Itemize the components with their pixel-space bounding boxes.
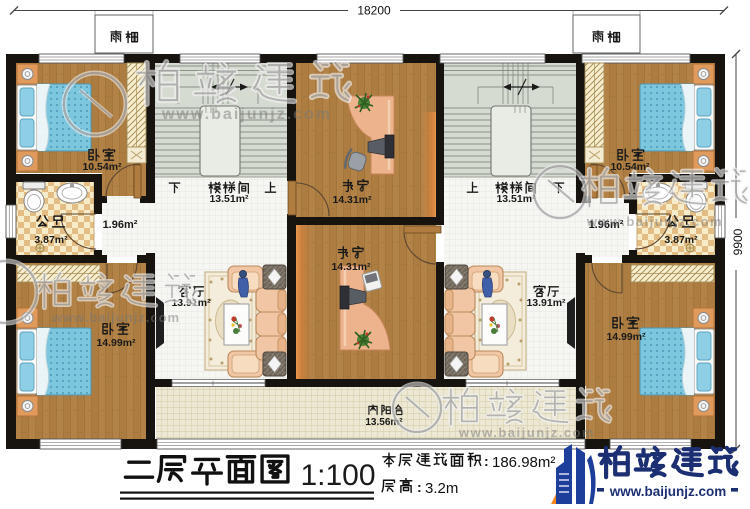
svg-text:10.54m²: 10.54m² (82, 161, 122, 173)
svg-text:3.87m²: 3.87m² (664, 234, 698, 246)
svg-text:18200: 18200 (357, 4, 391, 18)
svg-text:13.51m²: 13.51m² (496, 193, 536, 205)
svg-text:186.98m²: 186.98m² (492, 454, 555, 471)
svg-text:14.31m²: 14.31m² (331, 261, 371, 273)
svg-text::: : (417, 479, 422, 495)
svg-text:9900: 9900 (731, 228, 745, 255)
svg-text:www.baijunjz.com: www.baijunjz.com (586, 214, 723, 229)
svg-text:13.91m²: 13.91m² (526, 297, 566, 309)
svg-text:www.baijunjz.com: www.baijunjz.com (161, 106, 332, 123)
svg-text:3.2m: 3.2m (425, 480, 458, 497)
svg-text:14.99m²: 14.99m² (96, 337, 136, 349)
svg-text:www.baijunjz.com: www.baijunjz.com (458, 425, 595, 440)
svg-text:13.51m²: 13.51m² (209, 193, 249, 205)
svg-text:www.baijunjz.com: www.baijunjz.com (51, 310, 180, 325)
svg-text:14.99m²: 14.99m² (606, 331, 646, 343)
svg-text:14.31m²: 14.31m² (332, 194, 372, 206)
svg-text:1.96m²: 1.96m² (103, 219, 138, 231)
svg-text:3.87m²: 3.87m² (34, 234, 68, 246)
svg-text:www.baijunjz.com: www.baijunjz.com (609, 484, 727, 499)
svg-text:10.54m²: 10.54m² (610, 161, 650, 173)
svg-text:1:100: 1:100 (300, 459, 375, 492)
svg-text::: : (484, 453, 489, 469)
